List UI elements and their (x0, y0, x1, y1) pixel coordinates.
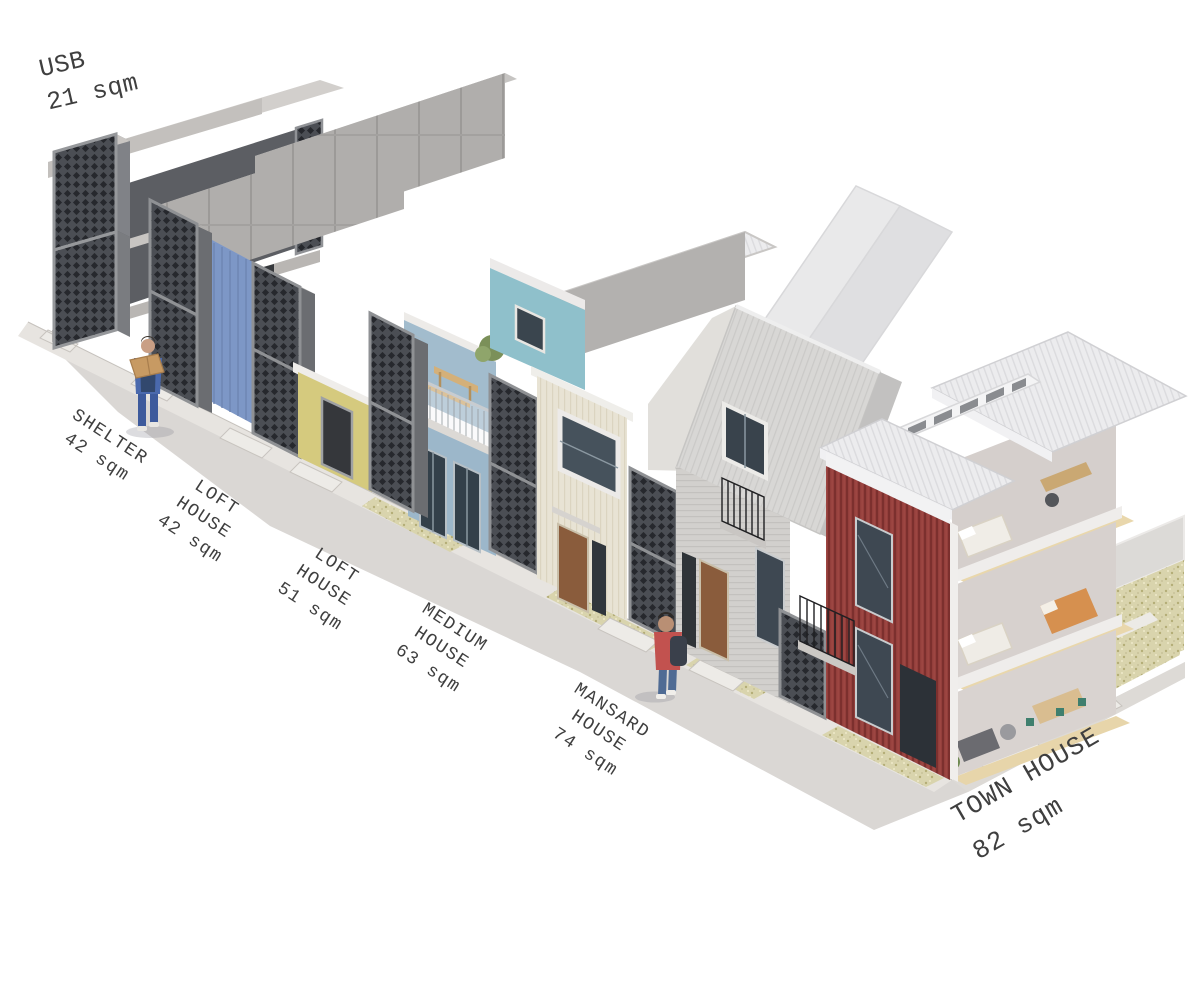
medium-door (558, 524, 588, 612)
back-roof (932, 332, 1186, 452)
loft42-door (322, 398, 352, 478)
armchair (1000, 724, 1016, 740)
mansard-door (700, 560, 728, 660)
head (141, 339, 155, 353)
lattice-panel (54, 232, 116, 348)
leg (658, 668, 667, 696)
town-interior (944, 398, 1134, 785)
backpack (670, 636, 687, 666)
mansard-sidelight (682, 552, 696, 648)
town-window (856, 518, 892, 622)
head (658, 616, 674, 632)
lattice-panel (54, 134, 116, 250)
leg (138, 390, 146, 428)
usb-lattice-column (54, 134, 130, 348)
town-entry-glass (900, 664, 936, 768)
lattice-tower (370, 313, 428, 518)
medium-sidelight (592, 540, 606, 616)
town-window (856, 628, 892, 734)
office-chair (1045, 493, 1059, 507)
